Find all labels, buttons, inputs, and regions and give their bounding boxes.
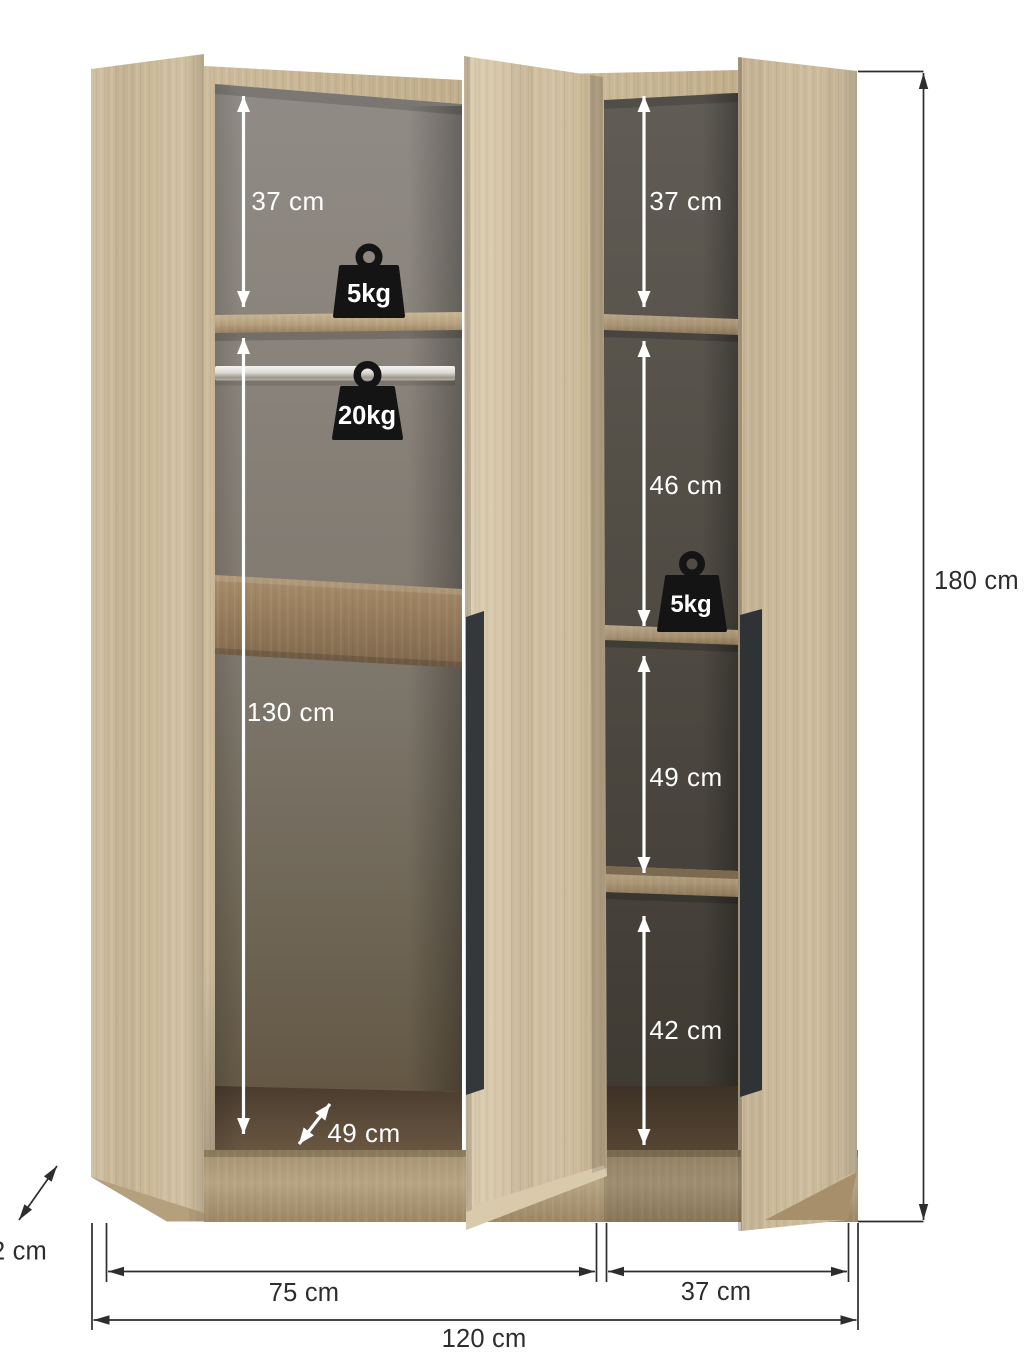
svg-text:37 cm: 37 cm <box>649 186 722 216</box>
svg-text:5kg: 5kg <box>670 591 711 618</box>
svg-text:2 cm: 2 cm <box>0 1238 47 1266</box>
svg-text:180 cm: 180 cm <box>934 567 1019 595</box>
svg-text:49 cm: 49 cm <box>649 762 722 792</box>
svg-text:5kg: 5kg <box>347 280 391 308</box>
svg-text:120 cm: 120 cm <box>442 1325 527 1353</box>
svg-text:42 cm: 42 cm <box>649 1015 722 1045</box>
svg-text:130 cm: 130 cm <box>247 697 335 727</box>
svg-text:46 cm: 46 cm <box>649 470 722 500</box>
svg-text:75 cm: 75 cm <box>269 1279 339 1307</box>
svg-text:37 cm: 37 cm <box>251 186 324 216</box>
svg-text:49 cm: 49 cm <box>327 1118 400 1148</box>
svg-text:20kg: 20kg <box>338 402 396 430</box>
svg-text:37 cm: 37 cm <box>681 1278 751 1306</box>
